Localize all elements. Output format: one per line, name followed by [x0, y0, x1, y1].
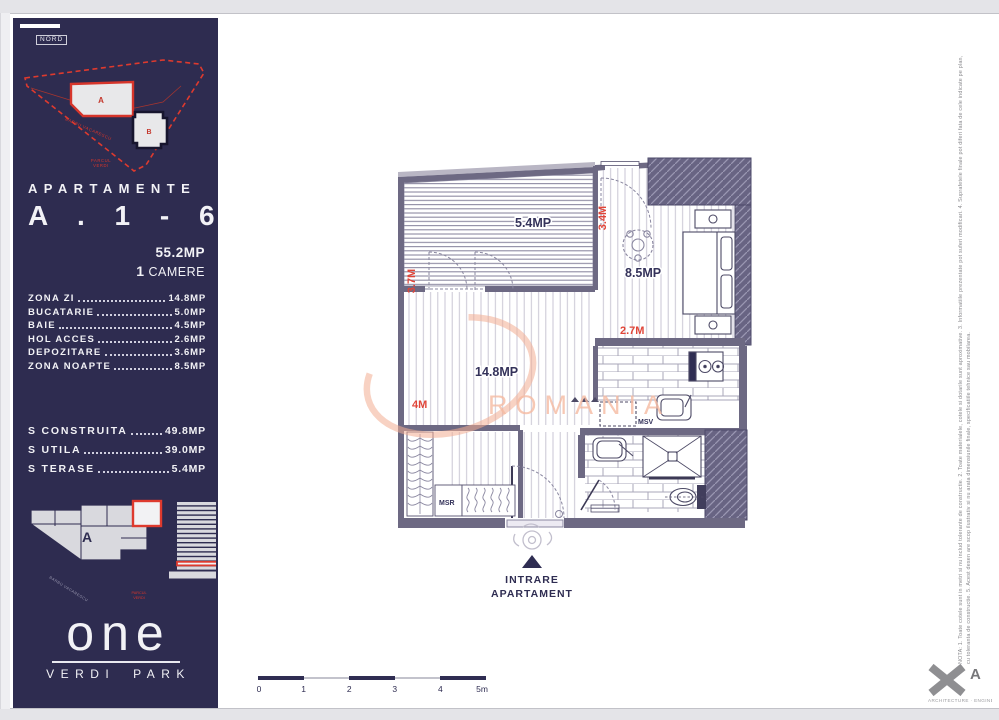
list-item: BUCATARIE5.0MP	[28, 307, 206, 318]
dot-leader	[84, 452, 162, 454]
bathroom-left-wall	[578, 435, 585, 478]
person-icon	[514, 524, 552, 549]
terrace-area-label: 5.4MP	[515, 216, 551, 230]
scale-bar: 0 1 2 3 4 5m	[258, 676, 486, 696]
site-plan: A B BARBU VACARESCU PARCUL VERDI	[13, 46, 218, 196]
hall-closet-wall	[518, 430, 523, 518]
bedroom-area-label: 8.5MP	[625, 266, 661, 280]
list-item: S UTILA39.0MP	[28, 444, 206, 456]
surface-value: 49.8MP	[165, 425, 206, 437]
entrance-label-2: APARTAMENT	[491, 588, 573, 600]
dim-4m: 4M	[412, 399, 427, 411]
structural-wall-strip	[735, 205, 751, 345]
kitchen-divider-wall	[595, 338, 745, 346]
top-margin-band	[0, 0, 999, 14]
room-name: BAIE	[28, 320, 56, 331]
room-name: HOL ACCES	[28, 334, 95, 345]
scale-tick: 4	[438, 684, 443, 694]
surface-name: S UTILA	[28, 444, 81, 456]
bottom-margin-band	[0, 708, 999, 720]
living-area-label: 14.8MP	[475, 365, 518, 379]
bottom-wall-right	[564, 518, 745, 528]
room-value: 8.5MP	[175, 361, 206, 372]
surfaces-list: S CONSTRUITA49.8MP S UTILA39.0MP S TERAS…	[28, 425, 206, 482]
room-value: 3.6MP	[175, 347, 206, 358]
left-wall	[398, 177, 404, 525]
wall-segment	[485, 286, 595, 292]
dot-leader	[114, 368, 171, 370]
dim-2-7m: 2.7M	[620, 325, 644, 337]
rooms-count-line: 1 CAMERE	[136, 263, 205, 279]
room-value: 5.0MP	[175, 307, 206, 318]
nightstand	[695, 210, 731, 228]
scale-tick: 1	[301, 684, 306, 694]
entrance-marker: INTRARE APARTAMENT	[491, 524, 573, 600]
burner-dot	[704, 365, 706, 367]
list-item: ZONA NOAPTE8.5MP	[28, 361, 206, 372]
brand-rule	[52, 661, 180, 663]
scale-seg-light	[395, 677, 441, 679]
scale-tick: 3	[392, 684, 397, 694]
apartments-heading: APARTAMENTE	[28, 181, 196, 196]
scale-seg-dark	[258, 676, 304, 680]
room-areas-list: ZONA ZI14.8MP BUCATARIE5.0MP BAIE4.5MP H…	[28, 293, 206, 375]
room-name: BUCATARIE	[28, 307, 94, 318]
entrance-label-1: INTRARE	[505, 574, 559, 586]
disclaimer-note: NOTA: 1. Toate cotele sunt in metri si n…	[957, 48, 972, 664]
list-item: HOL ACCES2.6MP	[28, 334, 206, 345]
bathroom-right-wall	[705, 430, 747, 520]
highlighted-floor	[177, 562, 216, 566]
sliding-door	[601, 162, 639, 166]
rooms-count: 1	[136, 263, 144, 279]
list-item: S CONSTRUITA49.8MP	[28, 425, 206, 437]
msv-label: MSV	[638, 419, 654, 426]
north-indicator: NORD	[20, 24, 67, 46]
tower-section	[169, 502, 216, 579]
right-margin-band	[0, 13, 10, 709]
surface-value: 5.4MP	[172, 463, 206, 475]
dot-leader	[97, 314, 171, 316]
kitchen-right-wall	[739, 346, 747, 430]
site-street-label: BARBU VACARESCU	[65, 116, 113, 141]
keyplan-park-label-2: VERDI	[133, 596, 145, 600]
hall-floor	[523, 432, 578, 518]
note-line-1: NOTA: 1. Toate cotele sunt in metri si n…	[958, 210, 964, 664]
building-a-label: A	[98, 96, 104, 105]
apartment-summary: 55.2MP 1 CAMERE	[136, 245, 205, 279]
structural-wall-block	[648, 158, 751, 205]
room-name: DEPOZITARE	[28, 347, 102, 358]
architect-logo-caption: ARCHITECTURE · ENGINEERING	[928, 698, 992, 703]
north-bar	[20, 24, 60, 28]
entry-threshold	[507, 520, 563, 527]
msr-label: MSR	[439, 500, 455, 507]
terrace-floor	[404, 173, 593, 286]
burner-dot	[717, 365, 719, 367]
stove-panel	[689, 352, 696, 381]
keyplan-building-label: A	[82, 529, 92, 545]
room-value: 4.5MP	[175, 320, 206, 331]
scale-tick: 2	[347, 684, 352, 694]
architect-logo: A ARCHITECTURE · ENGINEERING	[926, 658, 992, 706]
scale-tick: 5m	[476, 684, 488, 694]
surface-value: 39.0MP	[165, 444, 206, 456]
scale-tick: 0	[257, 684, 262, 694]
list-item: S TERASE5.4MP	[28, 463, 206, 475]
room-name: ZONA ZI	[28, 293, 75, 304]
nightstand	[695, 316, 731, 334]
apartment-range-heading: A . 1 - 6	[28, 200, 226, 232]
brand-logo: one VERDI PARK	[13, 608, 218, 681]
brand-name: one	[19, 608, 218, 658]
bottom-wall-left	[398, 518, 505, 528]
scale-seg-dark	[349, 676, 395, 680]
dim-3-4m: 3.4M	[597, 206, 609, 230]
surface-name: S CONSTRUITA	[28, 425, 128, 437]
scale-seg-light	[304, 677, 350, 679]
brand-subtitle: VERDI PARK	[19, 667, 218, 681]
room-value: 14.8MP	[168, 293, 206, 304]
rooms-word: CAMERE	[149, 265, 205, 279]
north-label: NORD	[36, 35, 67, 45]
dot-leader	[59, 327, 172, 329]
dim-3-7m: 3.7M	[406, 269, 418, 293]
entrance-arrow	[522, 555, 542, 568]
page: NORD A B BARBU VACARESCU PARCUL VERDI AP…	[0, 0, 999, 720]
keyplan-street-label: BARBU VACARESCU	[48, 575, 88, 602]
scale-labels: 0 1 2 3 4 5m	[258, 682, 486, 694]
dot-leader	[98, 341, 171, 343]
dot-leader	[78, 300, 166, 302]
keyplan-park-label-1: PARCUL	[131, 591, 146, 595]
floor-plan: 3.7M 3.4M 2.7M 4M 5.4MP 14.8MP 8.5MP MSV…	[355, 148, 775, 640]
tower-base	[169, 572, 216, 579]
sidebar: NORD A B BARBU VACARESCU PARCUL VERDI AP…	[13, 18, 218, 708]
room-name: ZONA NOAPTE	[28, 361, 111, 372]
highlighted-unit	[133, 501, 161, 526]
x-mark-icon	[931, 667, 963, 693]
pillow	[721, 237, 732, 270]
wall-segment	[639, 163, 648, 169]
total-area: 55.2MP	[136, 245, 205, 260]
scale-seg-dark	[440, 676, 486, 680]
watermark-text: ROMANIA	[488, 390, 670, 420]
list-item: BAIE4.5MP	[28, 320, 206, 331]
architect-logo-letter: A	[970, 666, 981, 683]
site-park-label-2: VERDI	[93, 163, 109, 168]
dot-leader	[131, 433, 162, 435]
dot-leader	[98, 471, 169, 473]
pillow	[721, 275, 732, 308]
surface-name: S TERASE	[28, 463, 95, 475]
dot-leader	[105, 354, 172, 356]
building-b-label: B	[146, 129, 151, 136]
list-item: ZONA ZI14.8MP	[28, 293, 206, 304]
closet-floor	[447, 432, 515, 485]
room-value: 2.6MP	[175, 334, 206, 345]
key-plan: A BARBU VACARESCU PARCUL VERDI	[21, 498, 216, 603]
list-item: DEPOZITARE3.6MP	[28, 347, 206, 358]
